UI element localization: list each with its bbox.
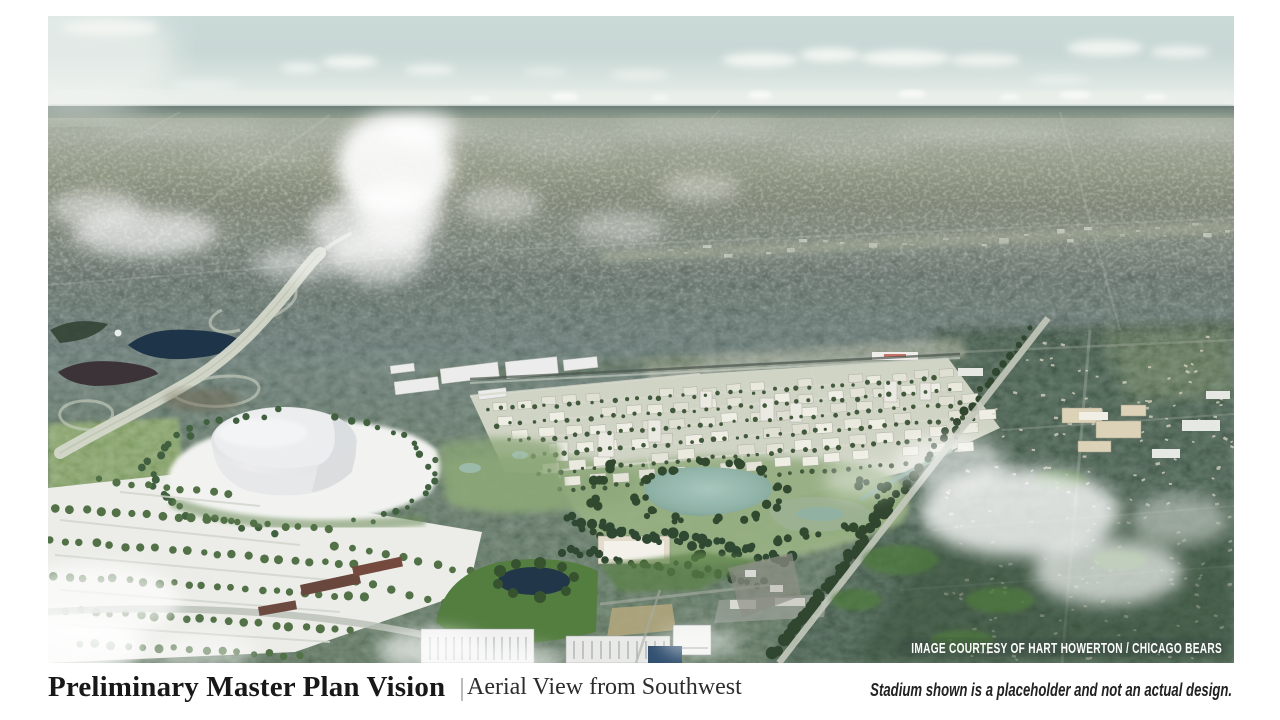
svg-text:IMAGE COURTESY OF HART HOWERTO: IMAGE COURTESY OF HART HOWERTON / CHICAG…	[911, 640, 1222, 656]
